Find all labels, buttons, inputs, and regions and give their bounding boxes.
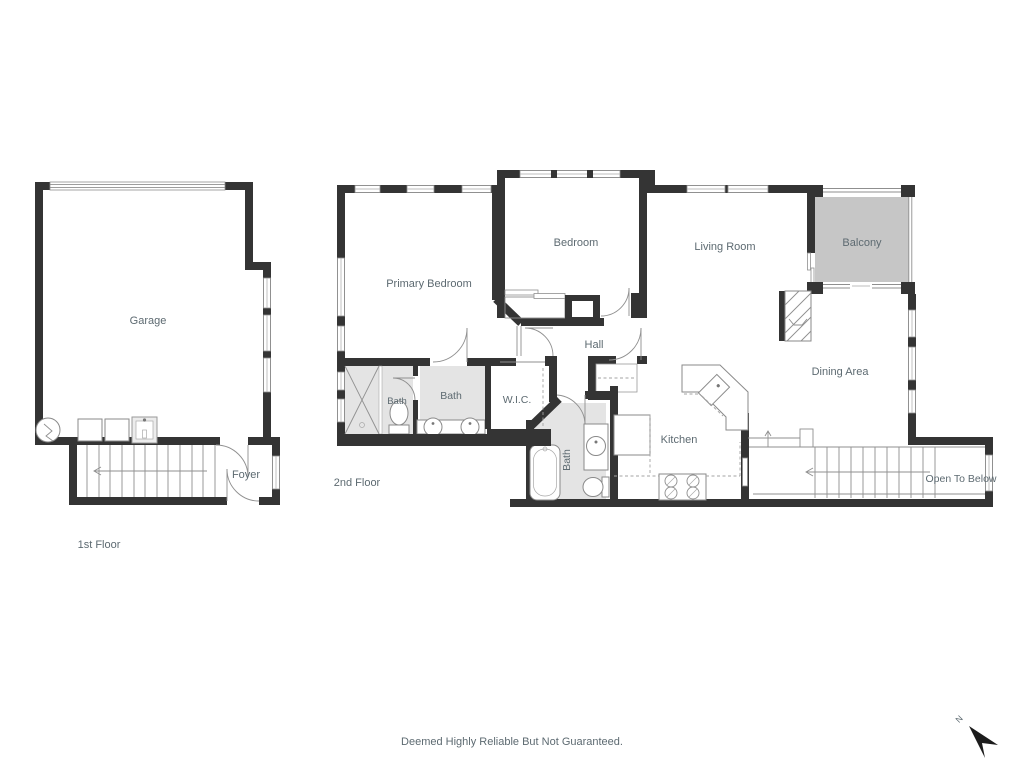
stairs-first-floor (87, 445, 215, 497)
room-label-bath-toilet-room: Bath (387, 396, 407, 407)
balcony-sliding-door (808, 253, 815, 285)
stove-icon (659, 474, 706, 500)
room-label-foyer: Foyer (232, 469, 260, 481)
sink-icon (584, 424, 608, 470)
garage-walls (35, 182, 280, 505)
room-label-bath-hall: Bath (561, 449, 573, 471)
primary-bedroom-doors (433, 328, 553, 362)
room-label-garage: Garage (130, 315, 167, 327)
north-label: N (953, 713, 964, 724)
room-label-kitchen: Kitchen (661, 434, 698, 446)
second-floor: Primary Bedroom Bedroom Living Room Balc… (334, 170, 997, 507)
second-floor-label: 2nd Floor (334, 477, 381, 489)
room-label-hall: Hall (585, 339, 604, 351)
room-label-primary-bedroom: Primary Bedroom (386, 278, 472, 290)
floor-plan-canvas: Garage Foyer 1st Floor (0, 0, 1024, 768)
room-label-bedroom: Bedroom (554, 237, 599, 249)
room-label-wic: W.I.C. (503, 394, 532, 406)
living-room-walls (647, 185, 815, 285)
north-compass-icon: N (953, 713, 998, 758)
stairs-up-arrow-icon (765, 431, 771, 447)
garage-window (264, 278, 271, 392)
foyer-window (273, 456, 280, 489)
laundry-sink-icon (132, 417, 157, 443)
room-label-living-room: Living Room (694, 241, 755, 253)
open-to-below-label: Open To Below (925, 473, 996, 485)
toilet-icon (583, 477, 609, 497)
fireplace-icon (779, 291, 811, 341)
room-label-dining-area: Dining Area (812, 366, 870, 378)
bathtub-icon (530, 445, 560, 500)
hall-bath (526, 386, 618, 507)
water-heater-icon (36, 418, 60, 442)
kitchen-peninsula-counter (682, 365, 748, 430)
stairs-down-arrow-icon (94, 467, 207, 475)
refrigerator-icon (614, 415, 650, 455)
double-vanity-icon (417, 418, 485, 436)
first-floor: Garage Foyer 1st Floor (35, 182, 280, 551)
room-label-bath-double-vanity: Bath (440, 390, 462, 402)
room-label-balcony: Balcony (842, 237, 882, 249)
disclaimer-text: Deemed Highly Reliable But Not Guarantee… (401, 736, 623, 748)
first-floor-label: 1st Floor (78, 539, 121, 551)
garage-door (50, 182, 225, 190)
